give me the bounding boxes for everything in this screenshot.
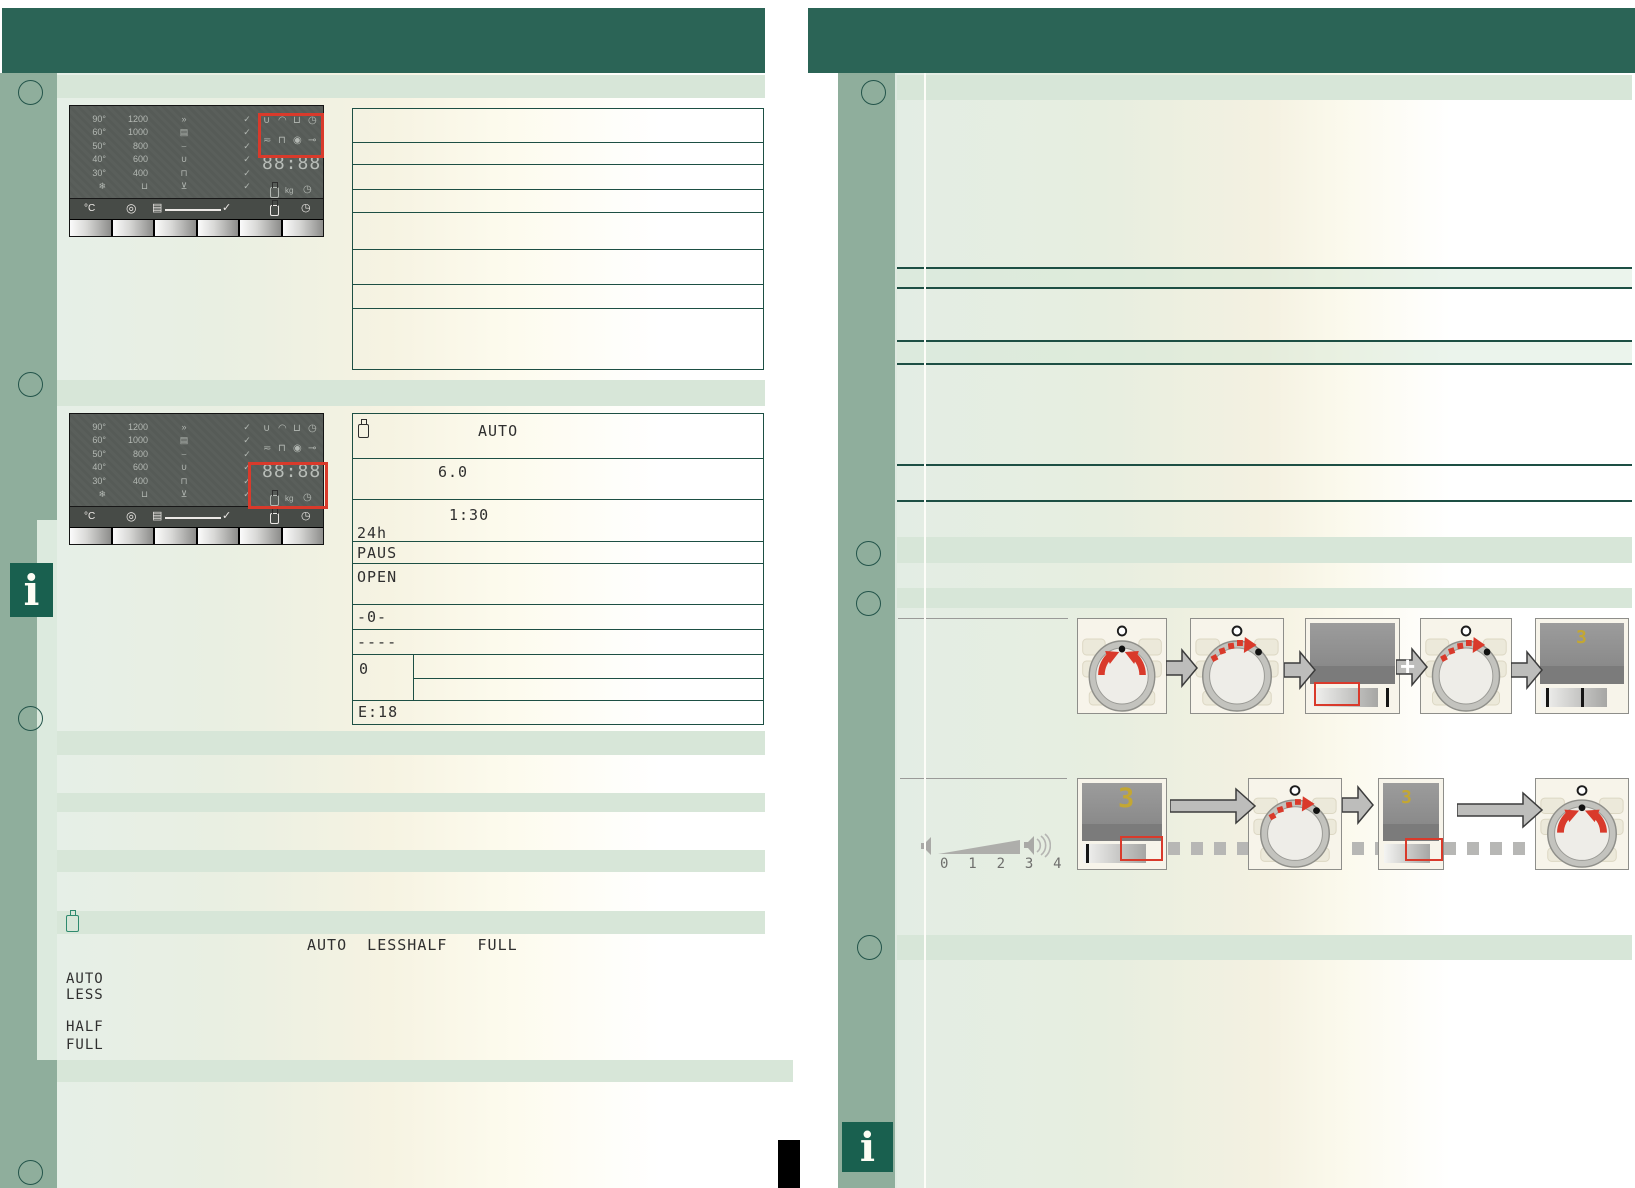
spin-speed-value: 800: [114, 141, 148, 151]
rule-line: [897, 340, 1632, 342]
section-marker-circle: [861, 80, 886, 105]
display-mid-band: [1540, 666, 1624, 684]
check-icon: ✓: [240, 154, 254, 164]
display-panel-box: 3: [1077, 778, 1167, 870]
table-row-line: [353, 249, 763, 250]
table-row-tint: [897, 340, 1632, 363]
check-icon: ✓: [240, 114, 254, 124]
highlight-red-box: [1314, 682, 1360, 706]
next-step-arrow-icon: +: [1396, 647, 1428, 692]
display-value: 3: [1576, 627, 1587, 648]
temp-button-label: °C: [84, 512, 95, 522]
load-option-full: FULL: [66, 1037, 104, 1053]
panel-buttons: [70, 219, 323, 236]
time-display: 88:88: [262, 159, 321, 169]
highlight-red-box: [248, 462, 328, 509]
check-button-label: ✓: [222, 203, 231, 213]
panel-button: [240, 528, 281, 544]
spin-speed-value: 800: [114, 449, 148, 459]
display-code-value: E:18: [358, 703, 398, 721]
table-row-line: [353, 189, 763, 190]
section-heading-band: [57, 793, 765, 812]
dial-rotate-icon: [1077, 618, 1167, 714]
temperature-value: 40°: [80, 154, 106, 164]
spin-button-icon: ◎: [126, 203, 136, 213]
section-heading-band: [897, 588, 1632, 608]
panel-button: [113, 528, 154, 544]
panel-button: [70, 528, 111, 544]
panel-button: [198, 528, 239, 544]
drop-icon: ◉: [293, 444, 302, 454]
check-icon: ✓: [240, 449, 254, 459]
section-marker-circle: [18, 80, 43, 105]
tub-wave-icon: ⊔: [293, 424, 301, 434]
tick-mark: [1086, 844, 1089, 863]
panel-button: [198, 220, 239, 236]
highlight-red-box: [1120, 836, 1163, 861]
handwash-icon: ⌣: [176, 141, 192, 151]
table-row-line: [353, 142, 763, 143]
table-subrow-line: [413, 678, 763, 679]
table-row-line: [353, 164, 763, 165]
section-heading-band: [57, 75, 765, 98]
dial-turn-right-icon: [1190, 618, 1284, 714]
table-row-line: [353, 563, 763, 564]
clock-button-icon: ◷: [301, 203, 311, 213]
highlight-red-box: [1405, 838, 1443, 861]
panel-button: [155, 528, 196, 544]
check-icon: ✓: [240, 168, 254, 178]
spin-speed-value: ⊔: [114, 181, 148, 191]
temp-button-label: °C: [84, 204, 95, 214]
table-row-line: [353, 604, 763, 605]
table-row-line: [353, 629, 763, 630]
panel-button: [240, 220, 281, 236]
info-icon: i: [842, 1122, 893, 1172]
check-button-label: ✓: [222, 511, 231, 521]
temperature-value: 90°: [80, 422, 106, 432]
easy-iron-icon: ▤: [176, 435, 192, 445]
display-code-value: PAUS: [357, 544, 397, 562]
temperature-value: 30°: [80, 168, 106, 178]
check-icon: ✓: [240, 141, 254, 151]
dial-turn-right-icon: [1420, 618, 1512, 714]
signal-volume-indicator: 0 1 2 3 4: [916, 833, 1051, 875]
tap-icon: ≂: [263, 444, 271, 454]
plus-sign: +: [1400, 651, 1415, 682]
next-step-arrow-icon: [1166, 648, 1198, 693]
spin-speed-value: 600: [114, 462, 148, 472]
temperature-value: 50°: [80, 141, 106, 151]
info-icon: i: [10, 563, 53, 617]
tick-mark: [1386, 688, 1389, 707]
key-icon: ⊸: [308, 444, 316, 454]
next-step-arrow-icon: [1284, 650, 1316, 695]
spin-speed-value: 1000: [114, 127, 148, 137]
childlock-icon: ◷: [308, 424, 317, 434]
bottle-icon: [270, 187, 279, 198]
section-heading-band: [897, 75, 1632, 100]
section-heading-band: [57, 911, 765, 934]
check-icon: ✓: [240, 422, 254, 432]
display-code-value: 6.0: [438, 463, 468, 481]
label-line: [165, 517, 221, 519]
speed-icon: »: [176, 114, 192, 124]
load-option-half: HALF: [66, 1019, 104, 1035]
section-heading-band: [57, 1060, 793, 1082]
dial-rotate-icon: [1535, 778, 1629, 870]
next-step-arrow-icon: [1342, 785, 1374, 830]
section-marker-circle: [18, 372, 43, 397]
section-marker-circle: [18, 706, 43, 731]
check-icon: ✓: [240, 127, 254, 137]
temperature-value: 60°: [80, 435, 106, 445]
power-icon: ∪: [263, 424, 270, 434]
spin-button-icon: ◎: [126, 511, 136, 521]
display-bottom-bar: [1541, 688, 1607, 707]
display-panel-box: 3: [1535, 618, 1629, 714]
spin-speed-value: 400: [114, 168, 148, 178]
tick-mark: [1546, 688, 1549, 707]
load-display-line: AUTO LESSHALF FULL: [307, 936, 518, 954]
table-row-line: [353, 308, 763, 309]
rule-line: [897, 500, 1632, 502]
rule-line: [897, 267, 1632, 269]
section-marker-circle: [856, 541, 881, 566]
table-row-line: [353, 212, 763, 213]
display-code-value: OPEN: [357, 568, 397, 586]
manual-double-page: i 90°1200»✓60°1000▤✓50°800⌣✓40°600∪✓30°4…: [0, 0, 1635, 1188]
table-row-line: [353, 541, 763, 542]
panel-button-labels: °C◎▤✓◷: [70, 506, 323, 528]
display-values-table: AUTO6.01:3024hPAUSOPEN-0-----0E:18: [352, 413, 764, 725]
easy-iron-icon: ▤: [176, 127, 192, 137]
rule-line: [897, 464, 1632, 466]
spin-speed-value: ⊔: [114, 489, 148, 499]
panel-button: [283, 220, 324, 236]
control-panel: 90°1200»✓60°1000▤✓50°800⌣✓40°600∪✓30°400…: [69, 105, 324, 237]
section-heading-band: [57, 380, 765, 406]
margin-divider-line: [924, 73, 926, 1188]
program-doc-icon: ▤: [152, 511, 162, 521]
handwash-icon: ⌣: [176, 449, 192, 459]
temperature-value: ❄: [80, 489, 106, 499]
clock-button-icon: ◷: [301, 511, 311, 521]
left-page-header-band: [2, 8, 765, 73]
display-code-value: AUTO: [478, 422, 518, 440]
program-doc-icon: ▤: [152, 203, 162, 213]
speed-icon: »: [176, 422, 192, 432]
foam-icon: ⊓: [278, 444, 286, 454]
display-code-value: ----: [357, 633, 397, 651]
sound-waves-icon: [1037, 834, 1050, 857]
rule-line: [897, 363, 1632, 365]
lid-icon: ◠: [278, 424, 287, 434]
tick-mark: [1581, 688, 1584, 707]
panel-button-labels: °C◎▤✓◷: [70, 198, 323, 220]
section-heading-band: [897, 537, 1632, 563]
table-row-line: [353, 700, 763, 701]
label-line: [165, 209, 221, 211]
display-value: 3: [1118, 783, 1134, 814]
panel-buttons: [70, 527, 323, 544]
wool-icon: ⊓: [176, 476, 192, 486]
drain-icon: ⊻: [176, 181, 192, 191]
table-row-line: [353, 654, 763, 655]
right-margin-strip: [838, 73, 895, 1188]
volume-levels: 0 1 2 3 4: [940, 856, 1063, 872]
highlight-red-box: [258, 113, 324, 158]
section-marker-circle: [18, 1160, 43, 1185]
spin-speed-value: 600: [114, 154, 148, 164]
next-step-arrow-icon: [1511, 650, 1543, 695]
dial-turn-right-icon: [1248, 778, 1342, 870]
page-number-box: [778, 1140, 800, 1188]
kg-label: kg: [285, 186, 293, 196]
load-option-less: LESS: [66, 987, 104, 1003]
spin-speed-value: 1200: [114, 422, 148, 432]
delicate-icon: ∪: [176, 462, 192, 472]
table-row-line: [353, 499, 763, 500]
display-code-value: 0: [359, 660, 369, 678]
display-code-value: 24h: [357, 524, 387, 542]
section-marker-circle: [857, 935, 882, 960]
bottle-button-icon: [270, 205, 279, 216]
rule-line: [897, 287, 1632, 289]
display-code-value: 1:30: [449, 506, 489, 524]
load-option-auto: AUTO: [66, 971, 104, 987]
table-row-tint: [897, 267, 1632, 287]
panel-button: [70, 220, 111, 236]
table-row-line: [353, 284, 763, 285]
bottle-button-icon: [270, 513, 279, 524]
temperature-value: 30°: [80, 476, 106, 486]
table-column-line: [413, 654, 414, 700]
temperature-value: 90°: [80, 114, 106, 124]
panel-button: [113, 220, 154, 236]
section-heading-band: [57, 731, 765, 755]
table-row-line: [353, 458, 763, 459]
section-heading-band: [57, 850, 765, 872]
section-heading-band: [897, 935, 1632, 960]
display-value: 3: [1401, 787, 1412, 808]
speaker-quiet-icon: [921, 837, 931, 855]
delicate-icon: ∪: [176, 154, 192, 164]
detergent-bottle-icon: [66, 915, 79, 932]
temperature-value: 50°: [80, 449, 106, 459]
panel-button: [283, 528, 324, 544]
display-dark-area: [1310, 623, 1395, 666]
next-step-arrow-icon: [1170, 786, 1256, 831]
right-page-header-band: [808, 8, 1635, 73]
indicator-table: [352, 108, 764, 370]
drain-icon: ⊻: [176, 489, 192, 499]
temperature-value: ❄: [80, 181, 106, 191]
check-icon: ✓: [240, 435, 254, 445]
display-panel-box: 3: [1378, 778, 1444, 870]
bottle-icon: [358, 424, 369, 438]
speaker-loud-icon: [1024, 836, 1034, 855]
display-code-value: -0-: [357, 608, 387, 626]
spin-speed-value: 1000: [114, 435, 148, 445]
spin-speed-value: 400: [114, 476, 148, 486]
panel-button: [155, 220, 196, 236]
check-icon: ✓: [240, 181, 254, 191]
wool-icon: ⊓: [176, 168, 192, 178]
clock-icon: ◷: [303, 185, 312, 195]
temperature-value: 60°: [80, 127, 106, 137]
section-marker-circle: [856, 591, 881, 616]
temperature-value: 40°: [80, 462, 106, 472]
next-step-arrow-icon: [1457, 790, 1543, 835]
volume-wedge-icon: [938, 840, 1020, 854]
spin-speed-value: 1200: [114, 114, 148, 124]
display-panel-box: [1305, 618, 1400, 714]
control-panel: 90°1200»✓60°1000▤✓50°800⌣✓40°600∪✓30°400…: [69, 413, 324, 545]
